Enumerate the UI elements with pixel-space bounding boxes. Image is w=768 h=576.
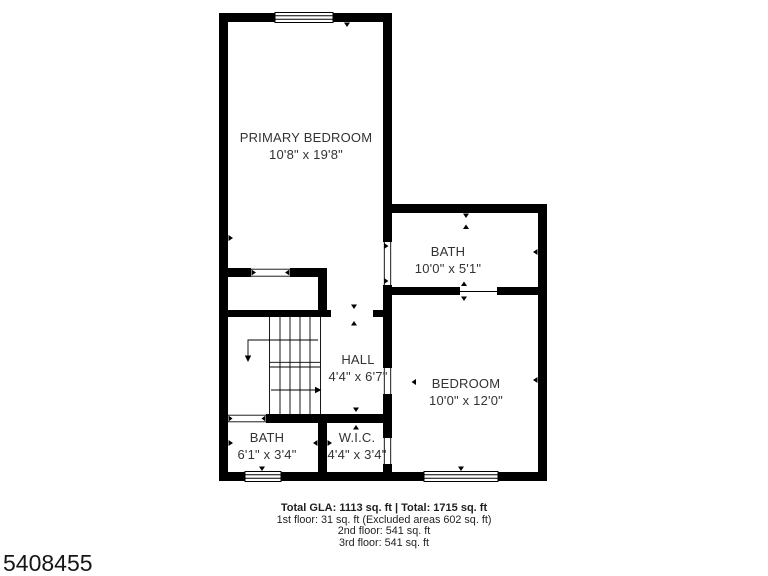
- room-label-bath-lower: BATH 6'1" x 3'4": [237, 429, 296, 463]
- room-dims: 4'4" x 6'7": [328, 368, 387, 385]
- walls: [219, 13, 547, 481]
- room-name: PRIMARY BEDROOM: [240, 129, 373, 146]
- room-dims: 6'1" x 3'4": [237, 446, 296, 463]
- photo-id: 5408455: [3, 552, 93, 575]
- floor-area-line-3: 3rd floor: 541 sq. ft: [0, 538, 768, 550]
- room-label-bath-upper: BATH 10'0" x 5'1": [415, 243, 481, 277]
- total-area-line: Total GLA: 1113 sq. ft | Total: 1715 sq.…: [0, 503, 768, 515]
- room-name: BEDROOM: [429, 375, 503, 392]
- room-dims: 10'0" x 12'0": [429, 392, 503, 409]
- floorplan-drawing: [0, 0, 768, 576]
- stair-direction-line: [248, 340, 318, 356]
- room-name: BATH: [237, 429, 296, 446]
- room-label-wic: W.I.C. 4'4" x 3'4": [327, 429, 386, 463]
- stair-down-arrow-icon: [245, 356, 251, 363]
- room-dims: 4'4" x 3'4": [327, 446, 386, 463]
- room-name: BATH: [415, 243, 481, 260]
- area-summary: Total GLA: 1113 sq. ft | Total: 1715 sq.…: [0, 503, 768, 550]
- room-label-hall: HALL 4'4" x 6'7": [328, 351, 387, 385]
- room-dims: 10'0" x 5'1": [415, 260, 481, 277]
- room-name: HALL: [328, 351, 387, 368]
- room-name: W.I.C.: [327, 429, 386, 446]
- staircase: [245, 317, 322, 414]
- room-label-primary-bedroom: PRIMARY BEDROOM 10'8" x 19'8": [240, 129, 373, 163]
- room-dims: 10'8" x 19'8": [240, 146, 373, 163]
- floorplan-page: { "floorplan": { "rooms": [ { "id": "pri…: [0, 0, 768, 576]
- room-label-bedroom: BEDROOM 10'0" x 12'0": [429, 375, 503, 409]
